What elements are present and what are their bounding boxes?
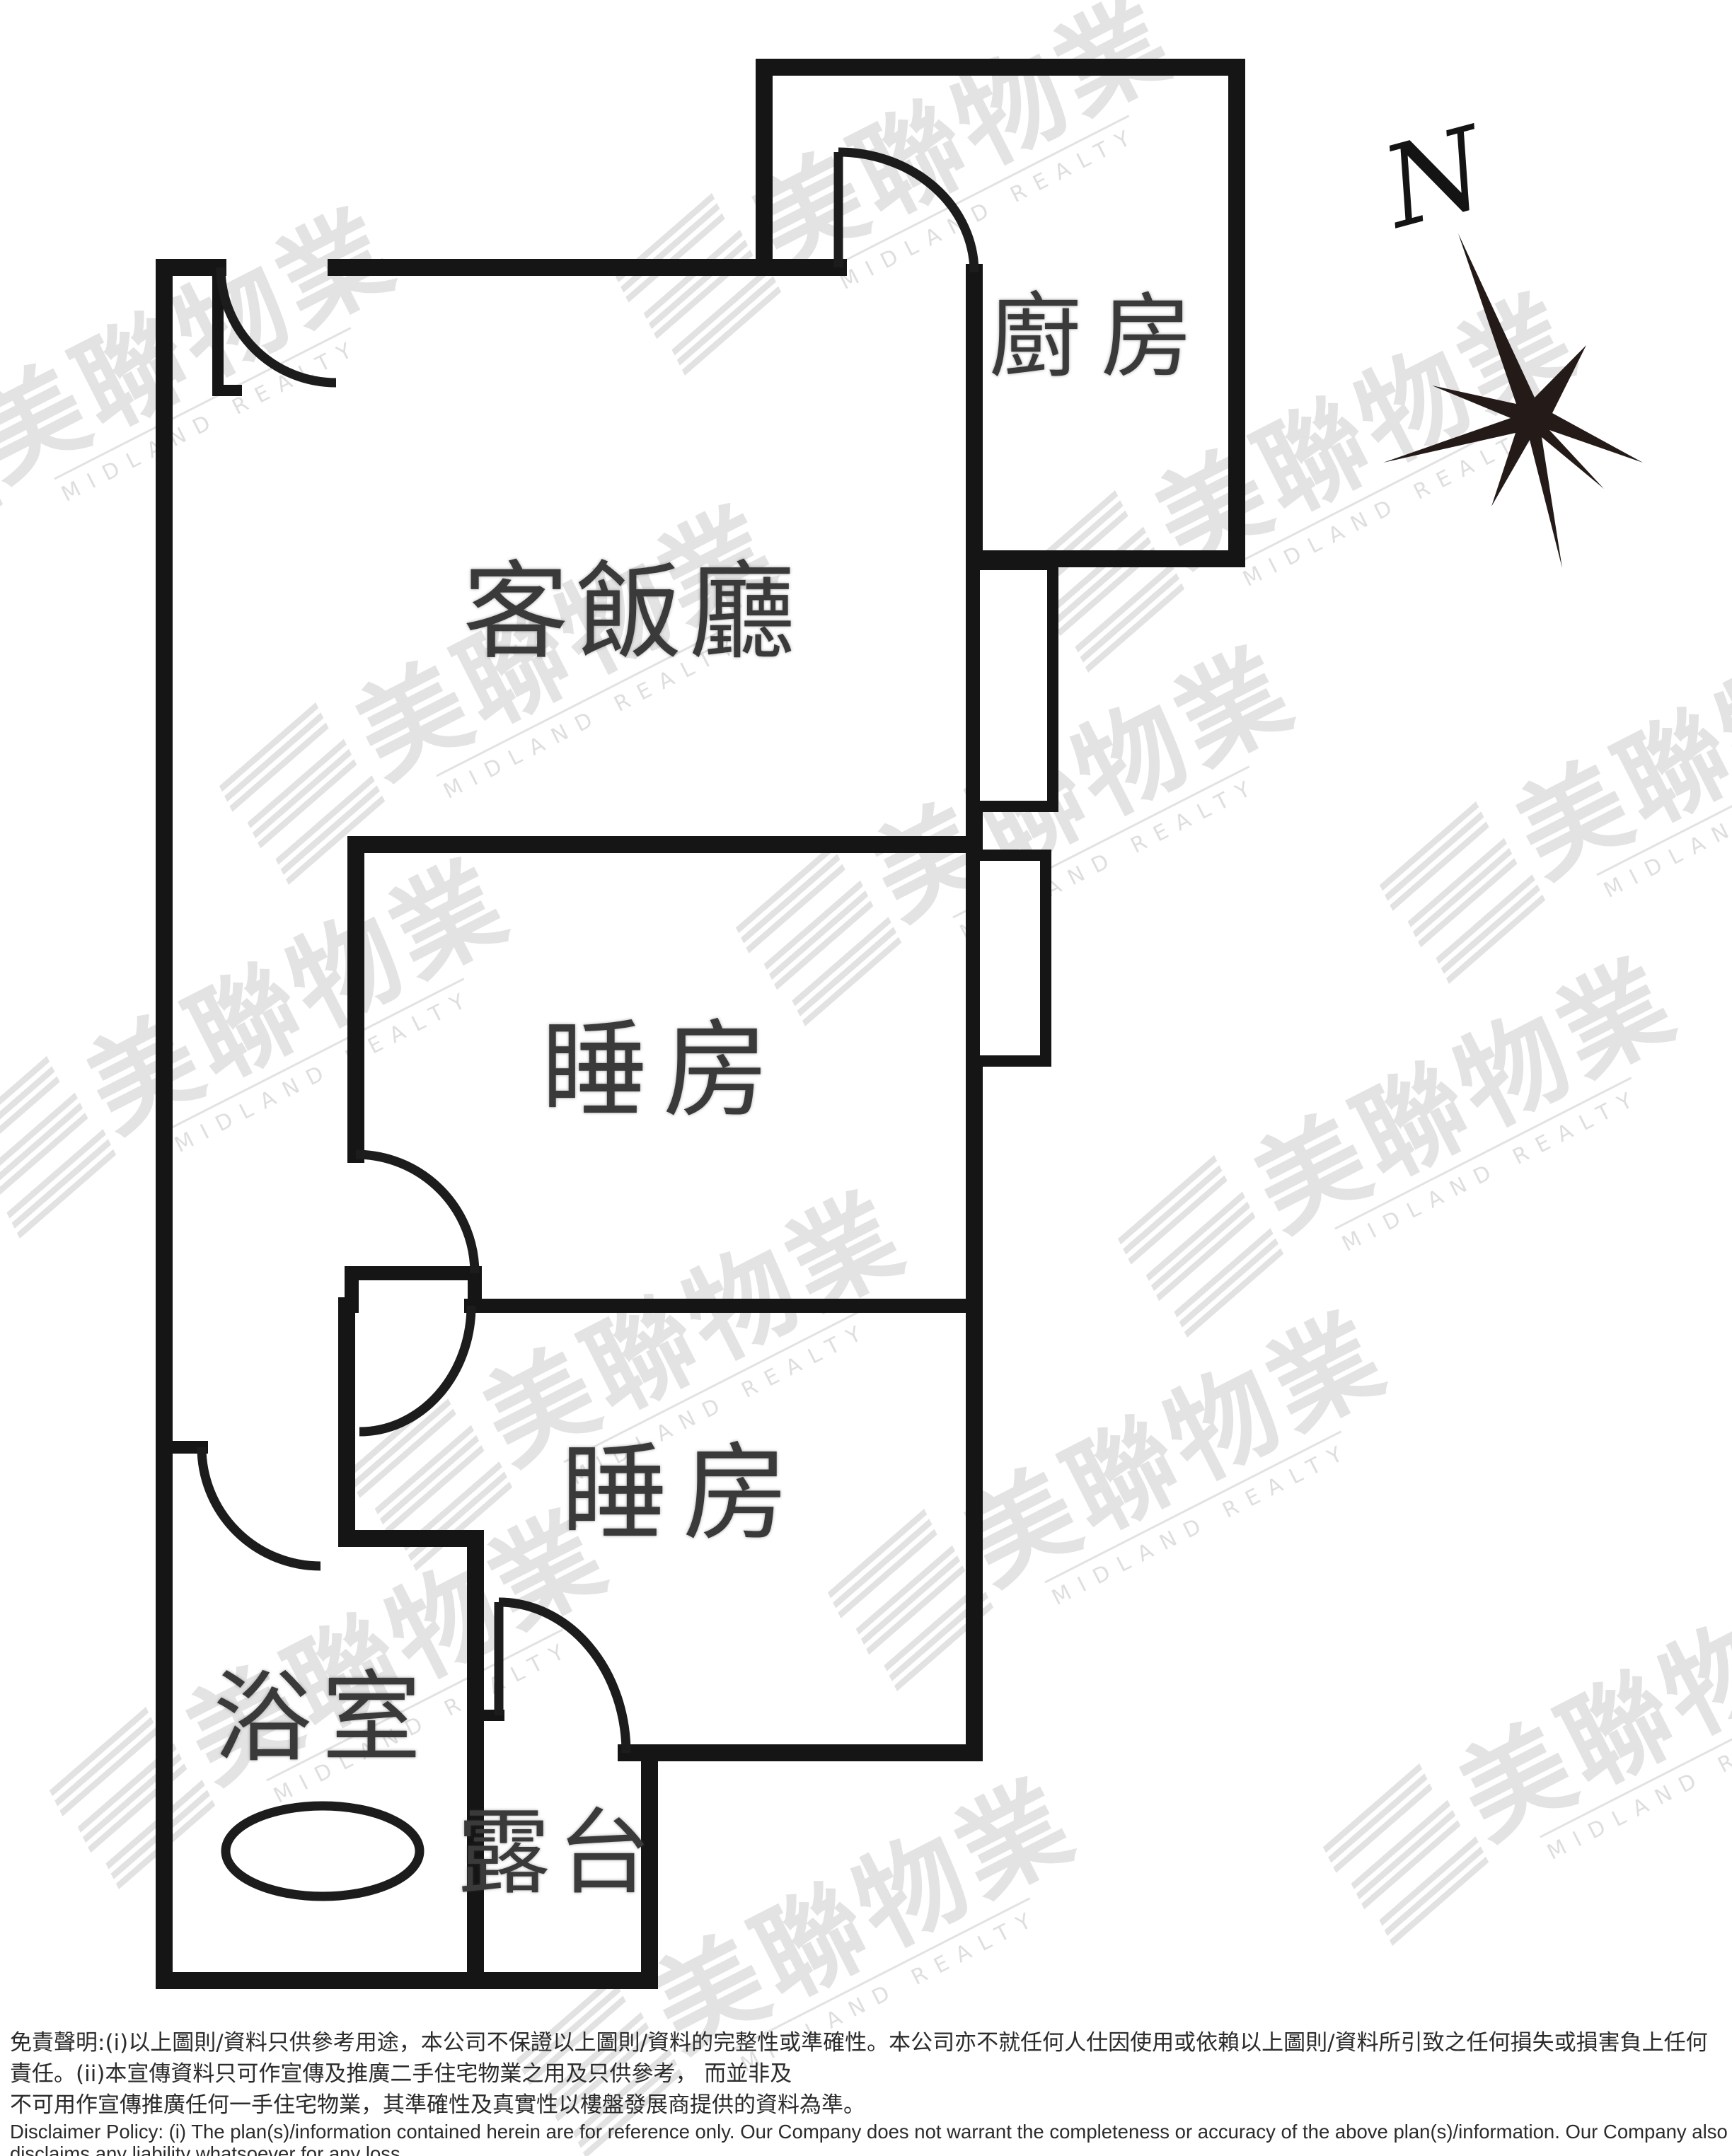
room-label-kitchen: 廚房 bbox=[989, 291, 1213, 383]
balcony-door-arc bbox=[499, 1602, 626, 1753]
bedroom2-door-arc bbox=[359, 1306, 471, 1432]
compass-star-icon bbox=[1383, 233, 1643, 568]
room-label-living-dining: 客飯廳 bbox=[463, 560, 802, 666]
service-ducts bbox=[974, 564, 1053, 1061]
duct-lower bbox=[974, 855, 1046, 1061]
disclaimer-zh-line2: 不可用作宣傳推廣任何一手住宅物業，其準確性及真實性以樓盤發展商提供的資料為準。 bbox=[10, 2090, 1728, 2121]
disclaimer-block: 免責聲明:(i)以上圖則/資料只供參考用途，本公司不保證以上圖則/資料的完整性或… bbox=[10, 2027, 1728, 2156]
entrance-door-arc bbox=[221, 267, 336, 383]
disclaimer-en-line1: Disclaimer Policy: (i) The plan(s)/infor… bbox=[10, 2121, 1728, 2156]
room-label-bedroom-upper: 睡房 bbox=[541, 1018, 785, 1124]
room-label-balcony: 露台 bbox=[457, 1807, 658, 1900]
bathroom-door-arc bbox=[202, 1447, 321, 1566]
bedroom-divider-wall-left bbox=[352, 1273, 475, 1306]
room-label-bathroom: 浴室 bbox=[213, 1669, 431, 1768]
kitchen-door-arc bbox=[838, 152, 974, 272]
duct-upper bbox=[974, 564, 1053, 806]
bedroom1-door-arc bbox=[356, 1154, 475, 1273]
bathtub-basin bbox=[226, 1806, 420, 1896]
disclaimer-zh-line1: 免責聲明:(i)以上圖則/資料只供參考用途，本公司不保證以上圖則/資料的完整性或… bbox=[10, 2027, 1728, 2090]
room-label-bedroom-lower: 睡房 bbox=[561, 1441, 804, 1547]
floorplan-page: 美聯物業MIDLAND REALTY 美聯物業MIDLAND REALTY 美聯… bbox=[0, 0, 1732, 2156]
floorplan-drawing bbox=[0, 0, 1732, 2156]
